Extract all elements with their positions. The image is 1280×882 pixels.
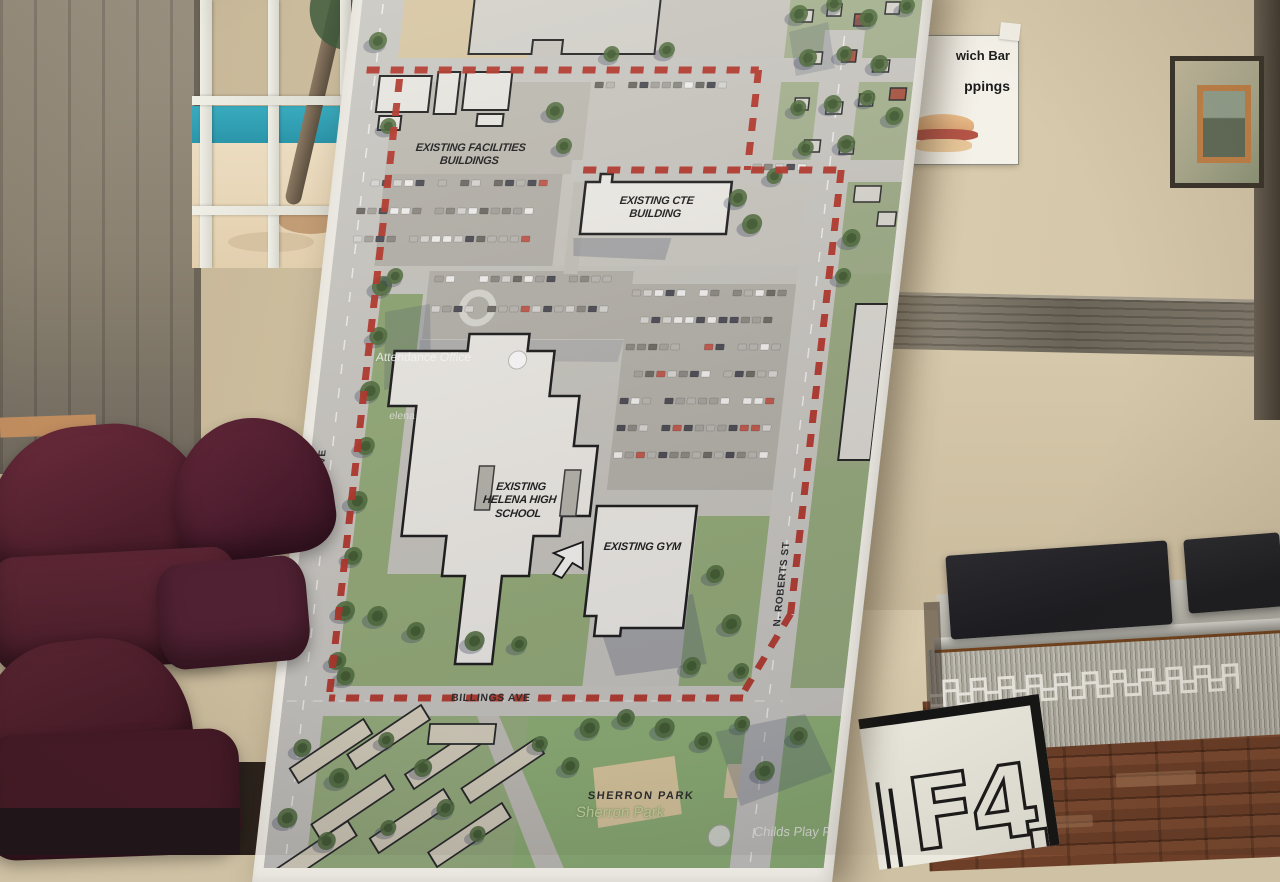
car-symbol [640, 317, 649, 323]
letter-sign: F4 H [858, 694, 1059, 870]
car-symbol [465, 236, 474, 242]
car-symbol [468, 208, 477, 214]
car-symbol [356, 208, 365, 214]
car-symbol [498, 306, 507, 312]
car-symbol [625, 452, 634, 458]
wood-beam [891, 292, 1280, 357]
car-symbol [752, 317, 761, 323]
car-symbol [415, 180, 424, 186]
car-symbol [401, 208, 410, 214]
car-symbol [654, 290, 663, 296]
car-symbol [513, 208, 522, 214]
label-existing-school: EXISTING HELENA HIGH SCHOOL [453, 481, 586, 521]
framed-picture [1170, 56, 1264, 188]
car-symbol [684, 425, 693, 431]
car-symbol [494, 180, 503, 186]
label-attendance-office: Attendance Office [375, 350, 472, 364]
car-symbol [393, 180, 402, 186]
car-symbol [681, 452, 690, 458]
car-symbol [656, 371, 665, 377]
car-symbol [435, 208, 444, 214]
car-symbol [730, 317, 739, 323]
car-symbol [390, 208, 399, 214]
car-symbol [642, 398, 651, 404]
car-symbol [438, 180, 447, 186]
car-symbol [707, 317, 716, 323]
seat-cushion [1183, 532, 1280, 613]
car-symbol [757, 371, 766, 377]
car-symbol [749, 344, 758, 350]
car-symbol [490, 276, 499, 282]
car-symbol [735, 371, 744, 377]
car-symbol [509, 306, 518, 312]
car-symbol [718, 317, 727, 323]
car-symbol [431, 306, 440, 312]
car-symbol [777, 290, 786, 296]
car-symbol [409, 236, 418, 242]
car-symbol [651, 317, 660, 323]
car-symbol [543, 306, 552, 312]
car-symbol [717, 425, 726, 431]
car-symbol [679, 371, 688, 377]
car-symbol [613, 452, 622, 458]
car-symbol [434, 276, 443, 282]
window-frame-bar [192, 96, 364, 105]
car-symbol [672, 425, 681, 431]
car-symbol [632, 290, 641, 296]
car-symbol [658, 452, 667, 458]
car-symbol [628, 425, 637, 431]
car-symbol [502, 276, 511, 282]
car-symbol [565, 306, 574, 312]
car-symbol [367, 208, 376, 214]
car-symbol [387, 236, 396, 242]
car-symbol [446, 276, 455, 282]
car-symbol [371, 180, 380, 186]
car-symbol [591, 276, 600, 282]
car-symbol [532, 306, 541, 312]
car-symbol [639, 425, 648, 431]
car-symbol [695, 425, 704, 431]
car-symbol [643, 290, 652, 296]
car-symbol [479, 208, 488, 214]
floor-shadow-corner [0, 808, 240, 855]
car-symbol [720, 398, 729, 404]
car-symbol [771, 344, 780, 350]
stacked-chair-seat [154, 554, 313, 672]
car-symbol [639, 82, 648, 88]
car-symbol [669, 452, 678, 458]
car-symbol [510, 236, 519, 242]
car-symbol [661, 425, 670, 431]
car-symbol [505, 180, 514, 186]
car-symbol [765, 398, 774, 404]
car-symbol [723, 371, 732, 377]
car-symbol [634, 371, 643, 377]
car-symbol [487, 306, 496, 312]
car-symbol [648, 344, 657, 350]
car-symbol [714, 452, 723, 458]
label-street-billings: BILLINGS AVE [450, 692, 531, 704]
car-symbol [420, 236, 429, 242]
car-symbol [527, 180, 536, 186]
car-symbol [535, 276, 544, 282]
car-symbol [754, 398, 763, 404]
car-symbol [725, 452, 734, 458]
car-symbol [502, 208, 511, 214]
car-symbol [546, 276, 555, 282]
car-symbol [628, 82, 637, 88]
car-symbol [760, 344, 769, 350]
car-symbol [698, 398, 707, 404]
car-symbol [709, 398, 718, 404]
car-symbol [715, 344, 724, 350]
car-symbol [524, 276, 533, 282]
car-symbol [521, 236, 530, 242]
car-symbol [737, 452, 746, 458]
car-symbol [743, 398, 752, 404]
car-symbol [659, 344, 668, 350]
letter-sign-art: F4 H [860, 704, 1060, 870]
car-symbol [524, 208, 533, 214]
car-symbol [677, 290, 686, 296]
car-symbol [651, 82, 660, 88]
car-symbol [748, 452, 757, 458]
car-symbol [479, 276, 488, 282]
car-symbol [580, 276, 589, 282]
car-symbol [759, 452, 768, 458]
car-symbol [539, 180, 548, 186]
framed-picture-inner [1197, 85, 1251, 163]
car-symbol [626, 344, 635, 350]
car-symbol [516, 180, 525, 186]
car-symbol [671, 344, 680, 350]
wood-patch [1116, 770, 1197, 787]
label-existing-facilities: EXISTING FACILITIES BUILDINGS [401, 142, 538, 169]
label-sherron-park-caps: SHERRON PARK [587, 790, 695, 802]
car-symbol [457, 208, 466, 214]
partial-letter-strokes [877, 781, 902, 870]
car-symbol [431, 236, 440, 242]
car-symbol [665, 290, 674, 296]
car-symbol [513, 276, 522, 282]
car-symbol [443, 236, 452, 242]
car-symbol [674, 317, 683, 323]
car-symbol [728, 425, 737, 431]
car-symbol [465, 306, 474, 312]
car-symbol [762, 425, 771, 431]
tree-symbol [736, 214, 764, 237]
car-symbol [744, 290, 753, 296]
car-symbol [706, 425, 715, 431]
car-symbol [636, 452, 645, 458]
car-symbol [718, 82, 727, 88]
car-symbol [454, 236, 463, 242]
car-symbol [460, 180, 469, 186]
car-symbol [733, 290, 742, 296]
car-symbol [471, 180, 480, 186]
car-symbol [491, 208, 500, 214]
car-symbol [738, 344, 747, 350]
car-symbol [684, 82, 693, 88]
car-symbol [577, 306, 586, 312]
car-symbol [741, 317, 750, 323]
car-symbol [602, 276, 611, 282]
car-symbol [487, 236, 496, 242]
car-symbol [667, 371, 676, 377]
label-existing-gym: EXISTING GYM [595, 541, 689, 554]
label-helena-fragment: elena H [389, 410, 427, 422]
car-symbol [595, 82, 604, 88]
car-symbol [637, 344, 646, 350]
car-symbol [692, 452, 701, 458]
car-symbol [766, 290, 775, 296]
weathered-wood-wall [0, 0, 201, 474]
car-symbol [768, 371, 777, 377]
car-symbol [554, 306, 563, 312]
car-symbol [446, 208, 455, 214]
map-graphics [264, 0, 926, 868]
car-symbol [364, 236, 373, 242]
car-symbol [699, 290, 708, 296]
car-symbol [664, 398, 673, 404]
car-symbol [696, 317, 705, 323]
car-symbol [375, 236, 384, 242]
car-symbol [620, 398, 629, 404]
car-symbol [755, 290, 764, 296]
car-symbol [695, 82, 704, 88]
car-symbol [763, 317, 772, 323]
car-symbol [353, 236, 362, 242]
car-symbol [616, 425, 625, 431]
car-symbol [687, 398, 696, 404]
car-symbol [690, 371, 699, 377]
car-symbol [631, 398, 640, 404]
car-symbol [685, 317, 694, 323]
paper-tab [999, 22, 1021, 41]
car-symbol [645, 371, 654, 377]
label-childs-play: Childs Play Pr [753, 824, 836, 839]
sandwich-bun-bottom [914, 139, 972, 152]
site-plan-poster: EXISTING FACILITIES BUILDINGS EXISTING C… [252, 0, 936, 882]
site-plan-map: EXISTING FACILITIES BUILDINGS EXISTING C… [264, 0, 926, 868]
car-symbol [662, 82, 671, 88]
car-symbol [710, 290, 719, 296]
car-symbol [704, 344, 713, 350]
car-symbol [606, 82, 615, 88]
car-symbol [404, 180, 413, 186]
car-symbol [662, 317, 671, 323]
window-frame-bar [200, 0, 212, 268]
car-symbol [569, 276, 578, 282]
car-symbol [499, 236, 508, 242]
label-sherron-park: Sherron Park [575, 804, 665, 821]
car-symbol [647, 452, 656, 458]
car-symbol [412, 208, 421, 214]
car-symbol [673, 82, 682, 88]
car-symbol [703, 452, 712, 458]
car-symbol [676, 398, 685, 404]
car-symbol [599, 306, 608, 312]
car-symbol [751, 425, 760, 431]
car-symbol [746, 371, 755, 377]
car-symbol [476, 236, 485, 242]
car-symbol [707, 82, 716, 88]
car-symbol [588, 306, 597, 312]
label-existing-cte: EXISTING CTE BUILDING [580, 182, 732, 234]
car-symbol [701, 371, 710, 377]
car-symbol [740, 425, 749, 431]
car-symbol [521, 306, 530, 312]
car-symbol [453, 306, 462, 312]
car-symbol [442, 306, 451, 312]
seat-cushion [945, 540, 1172, 639]
window-frame-bar [268, 0, 279, 268]
